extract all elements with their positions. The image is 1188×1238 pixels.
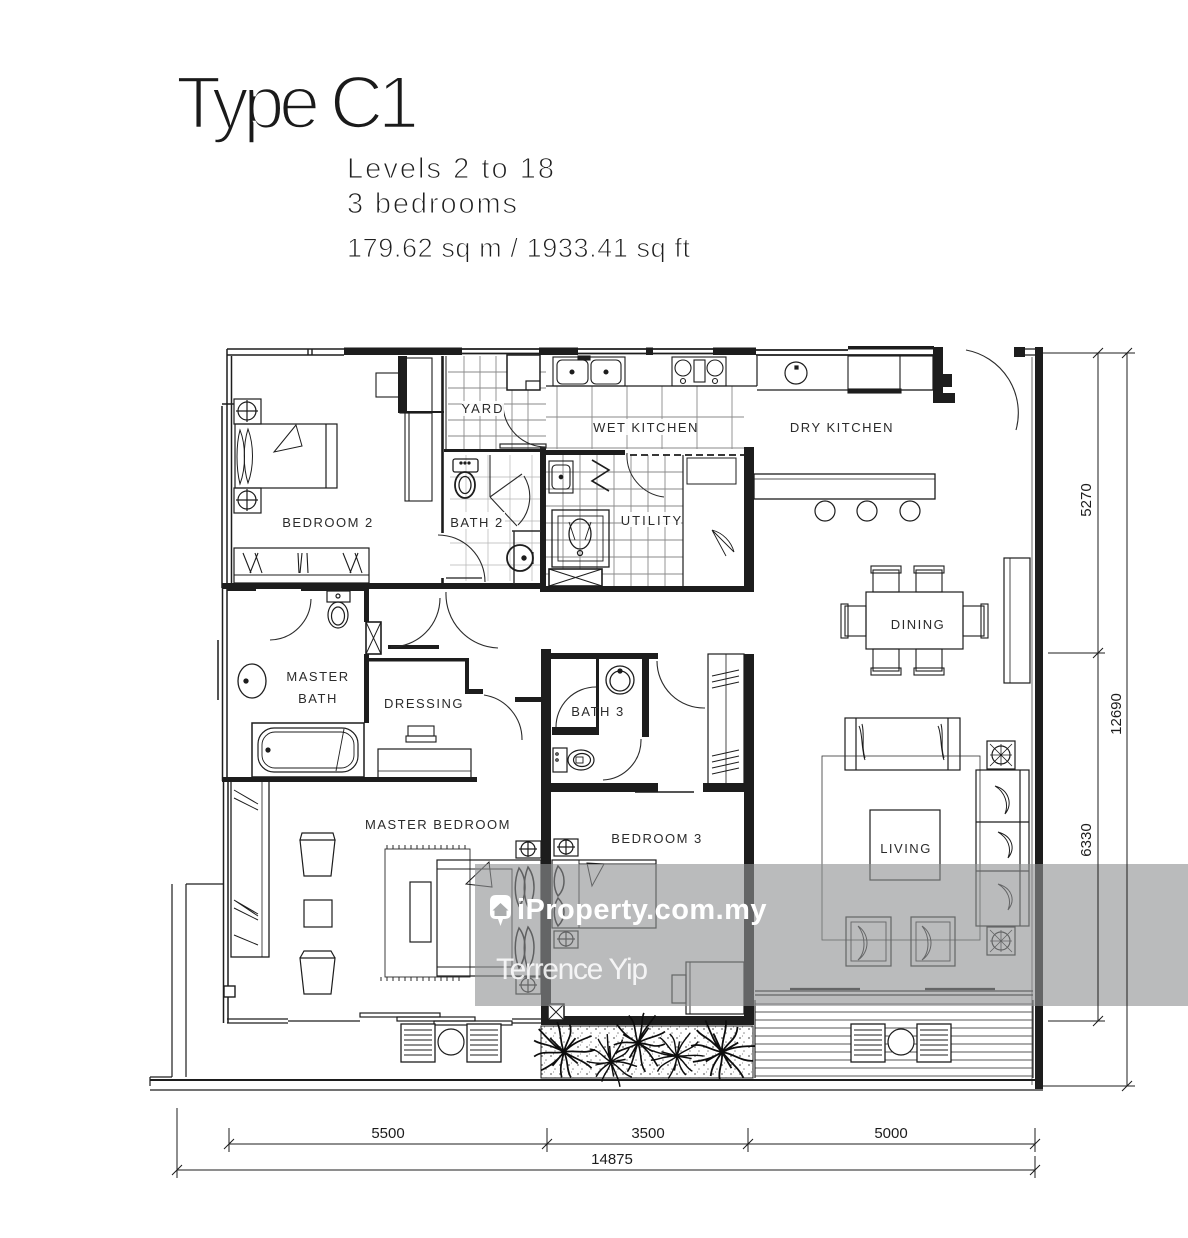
svg-text:5000: 5000	[874, 1125, 907, 1142]
svg-text:UTILITY: UTILITY	[621, 513, 683, 528]
svg-text:MASTER BEDROOM: MASTER BEDROOM	[365, 817, 511, 832]
svg-text:BATH 3: BATH 3	[571, 704, 625, 719]
svg-text:BEDROOM 3: BEDROOM 3	[611, 831, 703, 846]
svg-text:MASTER: MASTER	[286, 669, 349, 684]
svg-text:WET KITCHEN: WET KITCHEN	[593, 420, 699, 435]
svg-text:DINING: DINING	[891, 617, 946, 632]
svg-text:Levels 2 to 18: Levels 2 to 18	[347, 153, 554, 185]
svg-text:iProperty.com.my: iProperty.com.my	[517, 894, 766, 926]
svg-text:Type C1: Type C1	[176, 61, 418, 144]
svg-text:BATH 2: BATH 2	[450, 515, 504, 530]
svg-text:3 bedrooms: 3 bedrooms	[347, 188, 517, 220]
svg-text:5500: 5500	[371, 1125, 404, 1142]
svg-text:LIVING: LIVING	[880, 841, 932, 856]
svg-text:12690: 12690	[1108, 693, 1125, 735]
svg-text:BATH: BATH	[298, 691, 338, 706]
svg-text:6330: 6330	[1078, 823, 1095, 856]
svg-text:3500: 3500	[631, 1125, 664, 1142]
svg-text:YARD: YARD	[461, 401, 504, 416]
svg-text:DRESSING: DRESSING	[384, 696, 464, 711]
svg-text:DRY KITCHEN: DRY KITCHEN	[790, 420, 894, 435]
svg-text:14875: 14875	[591, 1151, 633, 1168]
svg-text:Terrence Yip: Terrence Yip	[496, 953, 648, 986]
svg-text:179.62 sq m / 1933.41 sq ft: 179.62 sq m / 1933.41 sq ft	[347, 233, 690, 263]
svg-text:BEDROOM 2: BEDROOM 2	[282, 515, 374, 530]
svg-text:5270: 5270	[1078, 483, 1095, 516]
